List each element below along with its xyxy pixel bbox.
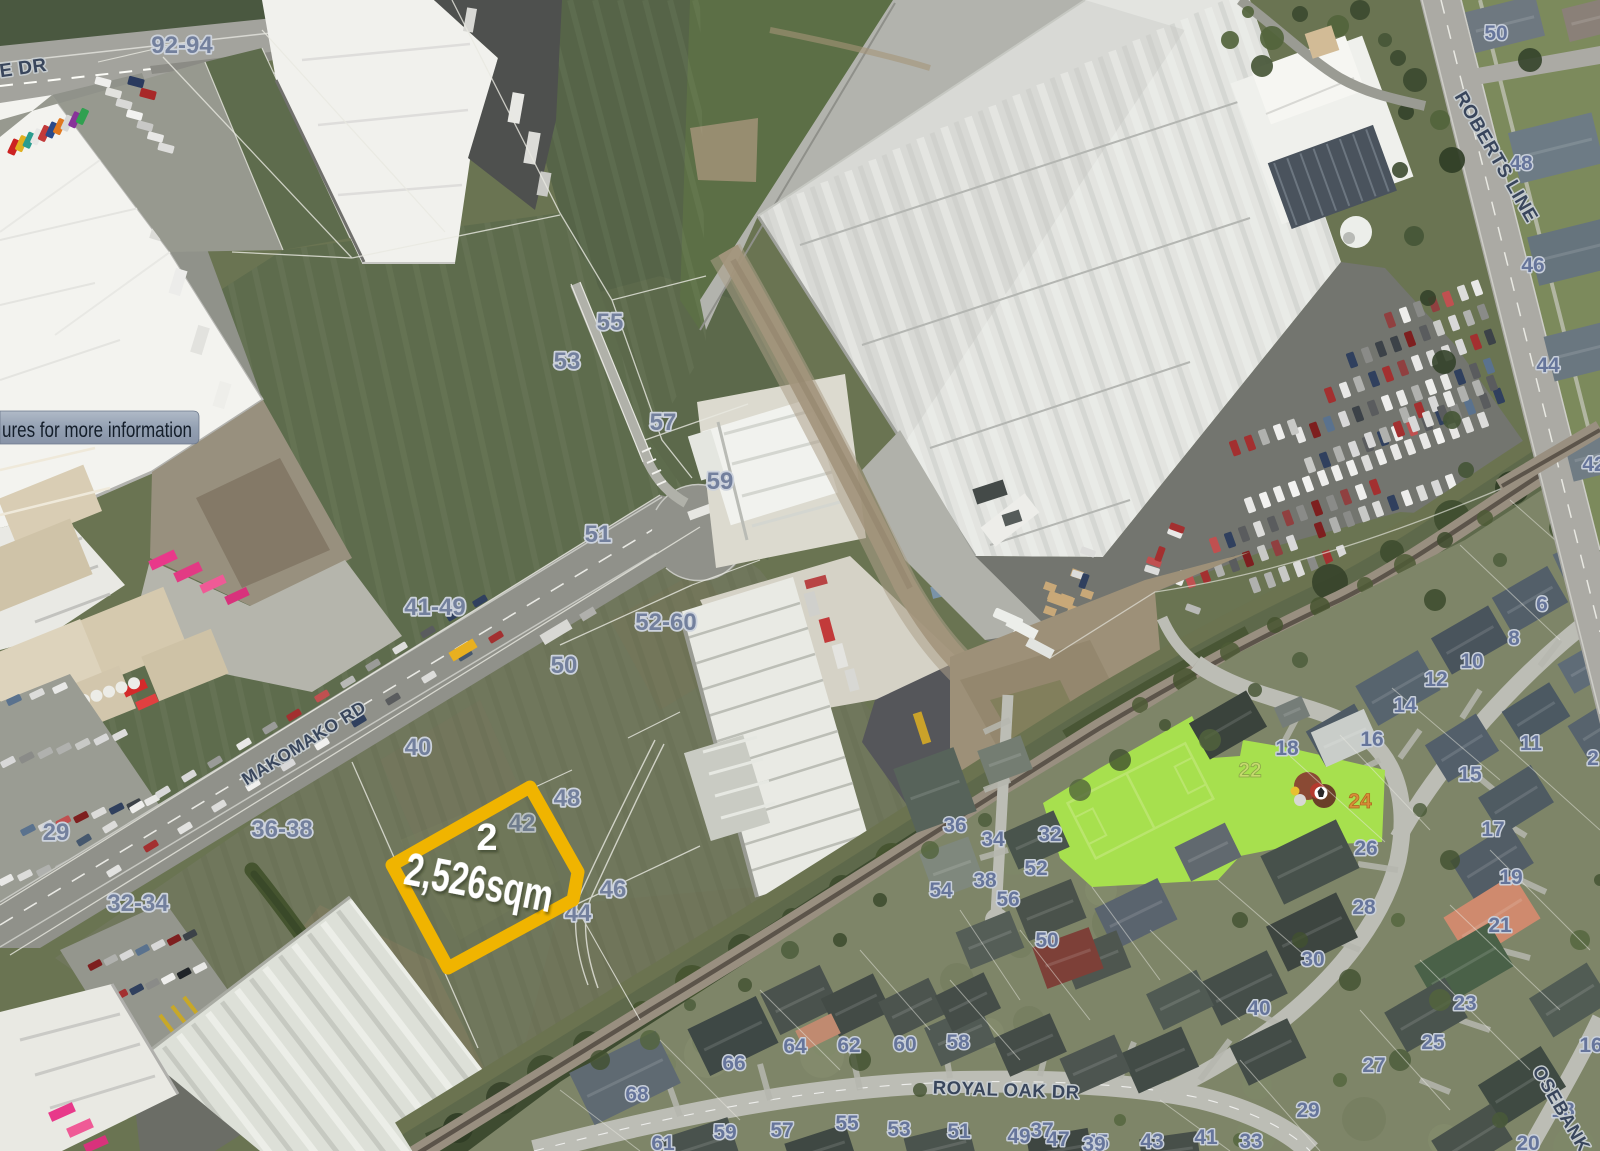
svg-text:46: 46 [1521,254,1544,277]
svg-text:26: 26 [1354,837,1377,860]
svg-text:59: 59 [713,1121,736,1144]
svg-text:39: 39 [1082,1133,1105,1151]
svg-text:32-34: 32-34 [107,890,169,917]
svg-text:10: 10 [1460,650,1483,673]
svg-text:29: 29 [1296,1099,1319,1122]
svg-text:21: 21 [1488,914,1512,937]
svg-text:44: 44 [1536,354,1560,377]
svg-text:16: 16 [1579,1034,1600,1057]
svg-text:42: 42 [1582,453,1600,476]
svg-text:59: 59 [707,468,734,495]
svg-text:41-49: 41-49 [404,594,465,621]
svg-text:54: 54 [929,879,953,902]
svg-text:27: 27 [1362,1054,1385,1077]
svg-text:24: 24 [1348,790,1372,813]
svg-text:17: 17 [1481,818,1504,841]
svg-text:23: 23 [1453,992,1476,1015]
svg-text:53: 53 [554,348,581,375]
svg-text:50: 50 [1484,22,1507,45]
svg-text:41: 41 [1194,1126,1218,1149]
svg-text:60: 60 [893,1033,916,1056]
svg-text:43: 43 [1140,1130,1163,1151]
svg-text:2: 2 [1587,747,1599,770]
svg-text:36: 36 [943,814,966,837]
svg-text:92-94: 92-94 [151,32,213,59]
svg-text:58: 58 [946,1031,970,1054]
svg-text:19: 19 [1499,866,1522,889]
svg-text:52: 52 [1024,857,1047,880]
svg-text:49: 49 [1007,1125,1030,1148]
svg-text:25: 25 [1421,1031,1445,1054]
svg-text:29: 29 [43,819,70,846]
svg-text:50: 50 [551,652,578,679]
svg-text:56: 56 [996,888,1019,911]
svg-text:38: 38 [973,869,997,892]
svg-text:55: 55 [597,309,624,336]
svg-text:20: 20 [1516,1132,1539,1151]
svg-text:14: 14 [1393,694,1417,717]
svg-text:50: 50 [1035,929,1058,952]
svg-text:51: 51 [585,521,612,548]
svg-text:12: 12 [1424,668,1447,691]
svg-text:ures for more information: ures for more information [2,419,192,442]
svg-text:62: 62 [837,1034,860,1057]
svg-text:11: 11 [1520,732,1543,755]
svg-text:37: 37 [1030,1119,1053,1142]
svg-text:40: 40 [1247,997,1270,1020]
svg-text:52-60: 52-60 [635,609,696,636]
svg-text:57: 57 [650,409,677,436]
svg-text:68: 68 [625,1083,649,1106]
svg-text:2: 2 [476,817,497,859]
svg-text:32: 32 [1038,823,1061,846]
svg-text:61: 61 [651,1132,675,1151]
svg-text:57: 57 [770,1119,793,1142]
svg-text:53: 53 [887,1118,910,1141]
svg-text:6: 6 [1536,593,1548,616]
svg-text:8: 8 [1508,627,1520,650]
svg-text:30: 30 [1301,948,1324,971]
svg-text:46: 46 [600,876,627,903]
svg-text:55: 55 [835,1112,859,1135]
svg-text:64: 64 [783,1035,807,1058]
svg-text:48: 48 [554,785,581,812]
svg-text:34: 34 [981,828,1005,851]
svg-text:16: 16 [1360,728,1383,751]
svg-text:15: 15 [1458,763,1482,786]
svg-text:40: 40 [405,734,432,761]
svg-text:28: 28 [1352,896,1376,919]
svg-text:36-38: 36-38 [251,816,312,843]
svg-text:51: 51 [947,1120,971,1143]
svg-text:66: 66 [722,1052,745,1075]
svg-text:33: 33 [1239,1130,1262,1151]
svg-text:18: 18 [1275,737,1299,760]
svg-text:22: 22 [1238,759,1261,782]
